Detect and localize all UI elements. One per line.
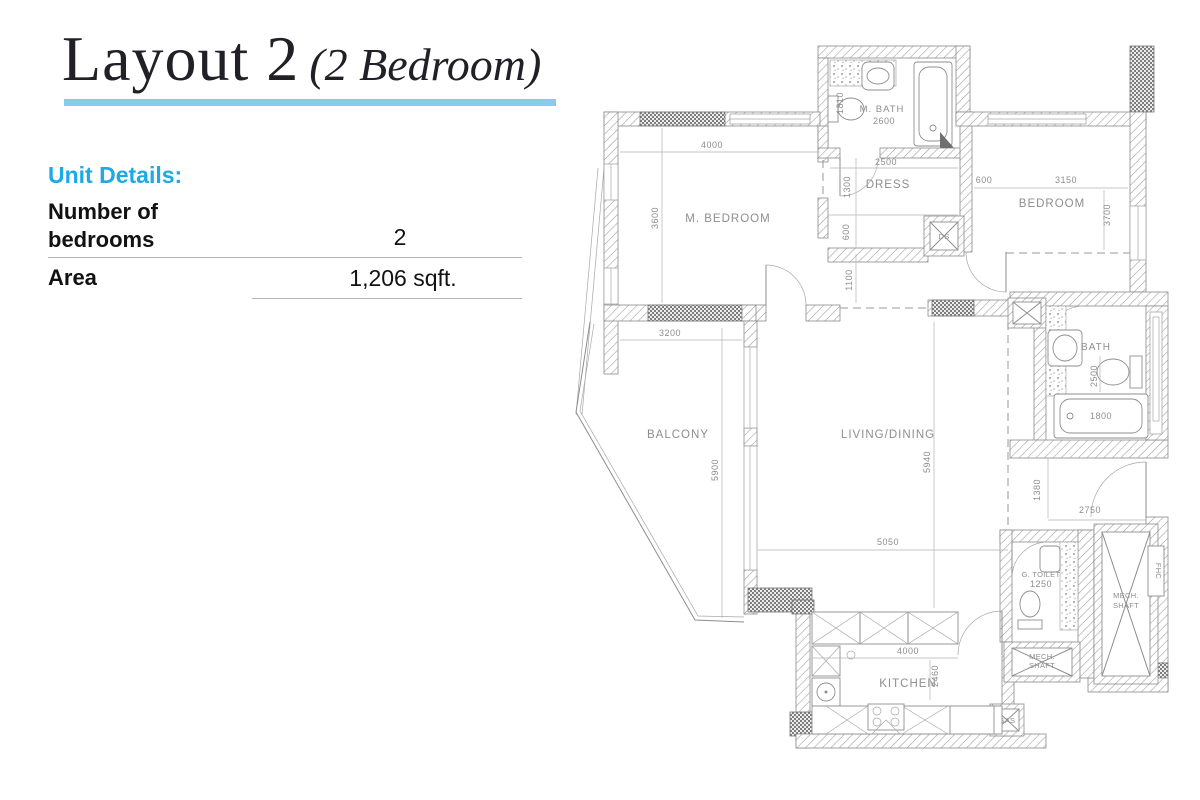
right-wall-duct [1150, 312, 1162, 434]
g-toilet-label: G. TOILET [1022, 570, 1061, 579]
dim-hall-w: 1100 [844, 269, 854, 290]
shaft-bath-duct [1008, 298, 1046, 328]
dim-m-bedroom-h: 3600 [650, 207, 660, 229]
floorplan: DS MECH. SHAFT MECH. SHAFT GAS FHC [0, 0, 1200, 800]
context-lines [576, 168, 604, 415]
kitchen-fixtures [812, 612, 1002, 734]
dim-balcony-w: 3200 [659, 328, 681, 338]
dim-m-bath-w: 2600 [873, 116, 895, 126]
bedroom-top-window [988, 114, 1086, 124]
dress-label: DRESS [866, 179, 911, 191]
balcony-door-window-1 [744, 347, 757, 428]
m-bedroom-window-1 [604, 164, 618, 200]
bedroom-label: BEDROOM [1019, 198, 1085, 210]
mech-big-label-2: SHAFT [1113, 601, 1139, 610]
bedroom-right-window [1130, 206, 1146, 260]
m-bath-label: M. BATH [860, 104, 905, 115]
dim-living-h: 5940 [922, 451, 932, 473]
dim-tub-w: 1800 [1090, 411, 1112, 421]
fhc-label: FHC [1154, 563, 1163, 580]
mech-small-label-2: SHAFT [1029, 661, 1055, 670]
fhc-cabinet: FHC [1148, 546, 1164, 596]
dim-g-toilet-w: 1250 [1030, 579, 1052, 589]
dim-bedroom-off: 600 [976, 175, 993, 185]
dim-foyer-h: 1380 [1032, 479, 1042, 501]
m-bedroom-door [766, 265, 806, 305]
balcony-label: BALCONY [647, 429, 709, 441]
mech-big-label-1: MECH. [1113, 591, 1139, 600]
kitchen-door [958, 611, 1002, 655]
dim-kitchen-h: 2460 [930, 665, 940, 687]
shaft-mech-small: MECH. SHAFT [1004, 642, 1080, 682]
dim-bedroom-h: 3700 [1102, 204, 1112, 226]
dim-dress-h1: 1300 [842, 176, 852, 198]
dim-kitchen-w: 4000 [897, 646, 919, 656]
dim-dress-w: 2500 [875, 157, 897, 167]
dim-living-w: 5050 [877, 537, 899, 547]
shaft-ds: DS [924, 216, 964, 256]
kitchen-label: KITCHEN [879, 678, 936, 690]
dim-foyer-w: 2750 [1079, 505, 1101, 515]
m-bedroom-window-2 [604, 268, 618, 304]
dim-bath-h: 2500 [1089, 365, 1099, 387]
bath-label: BATH [1081, 342, 1111, 353]
bedroom-door [966, 252, 1006, 292]
mech-small-label-1: MECH. [1029, 652, 1055, 661]
dim-balcony-h: 5900 [710, 459, 720, 481]
dim-bedroom-w: 3150 [1055, 175, 1077, 185]
dim-m-bath-h: 1810 [835, 92, 845, 114]
m-bedroom-top-window [730, 114, 810, 124]
m-bedroom-label: M. BEDROOM [685, 213, 770, 225]
balcony-door-window-2 [744, 446, 757, 570]
dim-m-bedroom-w: 4000 [701, 140, 723, 150]
living-label: LIVING/DINING [841, 429, 935, 441]
dim-dress-h2: 600 [841, 224, 851, 241]
